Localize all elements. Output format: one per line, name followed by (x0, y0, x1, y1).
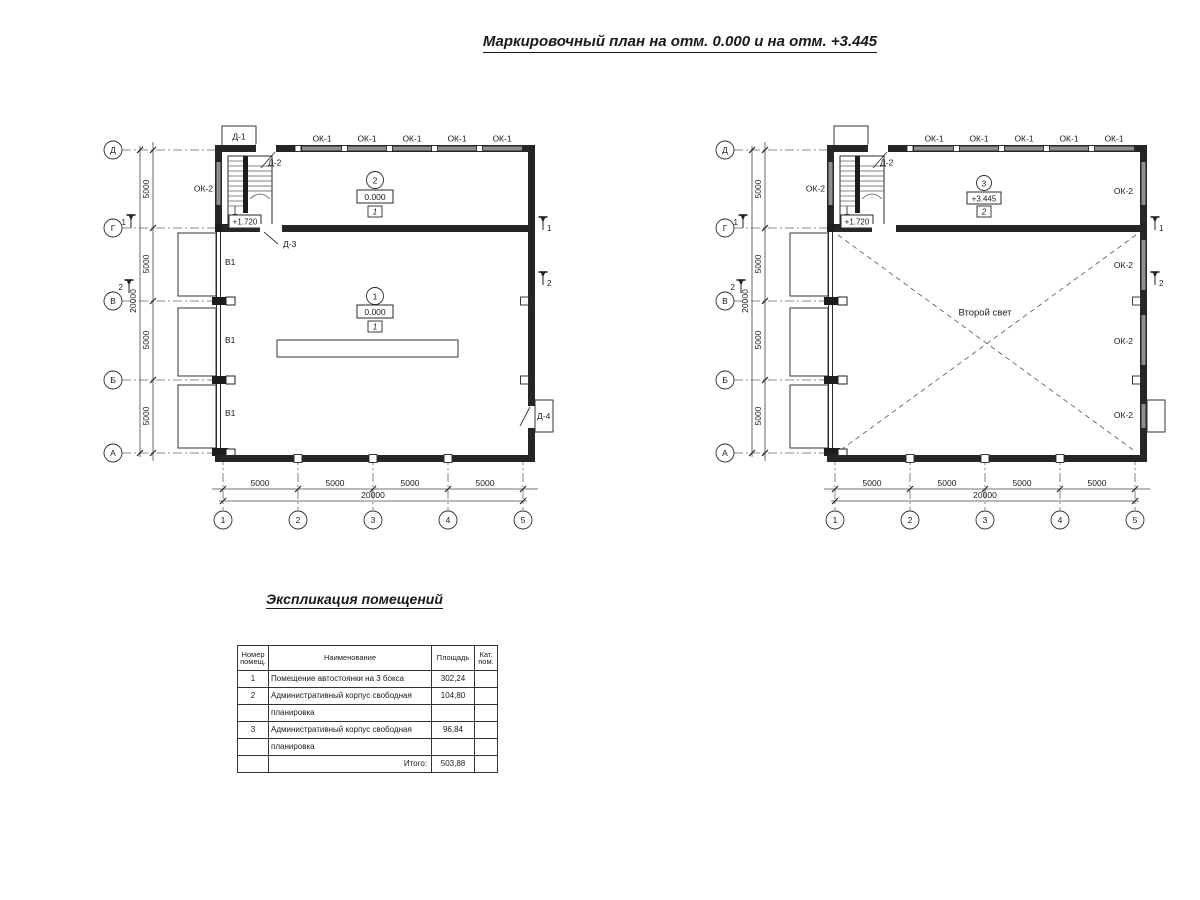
col-header-number: Номер помещ. (238, 646, 269, 671)
svg-text:ОК-1: ОК-1 (357, 134, 376, 144)
svg-text:А: А (110, 448, 116, 458)
svg-text:Д-3: Д-3 (283, 239, 297, 249)
svg-text:2: 2 (547, 279, 552, 288)
svg-text:Д-1: Д-1 (232, 132, 246, 142)
svg-text:5000: 5000 (1088, 478, 1107, 488)
svg-text:5000: 5000 (141, 406, 151, 425)
svg-text:ОК-1: ОК-1 (1014, 134, 1033, 144)
svg-text:ОК-1: ОК-1 (1104, 134, 1123, 144)
svg-text:1: 1 (373, 323, 377, 332)
svg-text:ОК-1: ОК-1 (402, 134, 421, 144)
axis-col-labels-right: 1 2 3 4 5 (833, 515, 1138, 525)
svg-text:Д-4: Д-4 (537, 411, 551, 421)
svg-text:5000: 5000 (326, 478, 345, 488)
svg-text:В: В (722, 296, 728, 306)
svg-text:2: 2 (296, 515, 301, 525)
plans-canvas: Д Г В Б А 1 2 3 4 5 5000 5000 5000 5000 … (0, 0, 1200, 570)
table-row: планировка (238, 705, 498, 722)
svg-text:3: 3 (371, 515, 376, 525)
table-row: 3 Административный корпус свободная 96,8… (238, 722, 498, 739)
svg-text:5000: 5000 (1013, 478, 1032, 488)
svg-text:ОК-1: ОК-1 (447, 134, 466, 144)
svg-text:+1.720: +1.720 (845, 218, 870, 227)
svg-text:ОК-2: ОК-2 (1114, 336, 1133, 346)
svg-text:5000: 5000 (141, 254, 151, 273)
void-diagonals (838, 235, 1136, 452)
svg-text:2: 2 (908, 515, 913, 525)
room-marker-2: 2 0.000 1 (357, 172, 393, 218)
svg-text:ОК-2: ОК-2 (806, 184, 825, 194)
svg-text:20000: 20000 (128, 289, 138, 313)
col-header-category: Кат. пом. (475, 646, 498, 671)
svg-text:4: 4 (446, 515, 451, 525)
svg-text:1: 1 (734, 218, 739, 227)
svg-text:2: 2 (373, 176, 378, 186)
svg-text:Второй свет: Второй свет (958, 308, 1012, 319)
svg-text:3: 3 (982, 180, 987, 189)
svg-text:5000: 5000 (476, 478, 495, 488)
svg-text:В1: В1 (225, 408, 236, 418)
table-row: планировка (238, 739, 498, 756)
room-marker-3: 3 +3.445 2 (967, 176, 1001, 218)
svg-text:5000: 5000 (251, 478, 270, 488)
svg-text:0.000: 0.000 (364, 307, 386, 317)
axis-row-labels-right: Д Г В Б А (722, 145, 728, 458)
table-total-row: Итого: 503,88 (238, 756, 498, 773)
svg-text:1: 1 (1159, 224, 1164, 233)
svg-text:5000: 5000 (753, 179, 763, 198)
svg-text:1: 1 (547, 224, 552, 233)
svg-text:3: 3 (983, 515, 988, 525)
svg-text:5: 5 (521, 515, 526, 525)
table-row: 1 Помещение автостоянки на 3 бокса 302,2… (238, 671, 498, 688)
svg-text:ОК-1: ОК-1 (969, 134, 988, 144)
col-header-area: Площадь (432, 646, 475, 671)
drawing-sheet: { "title": "Маркировочный план на отм. 0… (0, 0, 1200, 900)
inspection-pit (277, 340, 458, 357)
axis-row-labels-left: Д Г В Б А (110, 145, 116, 458)
svg-text:5000: 5000 (938, 478, 957, 488)
svg-text:ОК-2: ОК-2 (194, 184, 213, 194)
svg-text:Д-2: Д-2 (880, 158, 894, 168)
svg-text:1: 1 (221, 515, 226, 525)
svg-text:20000: 20000 (740, 289, 750, 313)
svg-text:0.000: 0.000 (364, 192, 386, 202)
svg-text:Г: Г (723, 223, 728, 233)
svg-text:ОК-1: ОК-1 (924, 134, 943, 144)
axis-col-labels-left: 1 2 3 4 5 (221, 515, 526, 525)
table-title: Экспликация помещений (266, 591, 443, 607)
room-schedule-table: Номер помещ. Наименование Площадь Кат. п… (237, 645, 498, 773)
svg-text:Б: Б (722, 375, 728, 385)
svg-text:Г: Г (111, 223, 116, 233)
svg-text:ОК-1: ОК-1 (492, 134, 511, 144)
svg-text:Д-2: Д-2 (268, 158, 282, 168)
svg-text:Д: Д (722, 145, 728, 155)
svg-text:2: 2 (1159, 279, 1164, 288)
svg-text:5000: 5000 (401, 478, 420, 488)
svg-text:ОК-1: ОК-1 (312, 134, 331, 144)
svg-text:5000: 5000 (753, 330, 763, 349)
svg-text:1: 1 (833, 515, 838, 525)
svg-text:5000: 5000 (141, 179, 151, 198)
floor-plan-level-3445: Д Г В Б А 1 2 3 4 5 5000 5000 5000 5000 … (716, 126, 1165, 529)
svg-text:20000: 20000 (361, 490, 385, 500)
svg-text:В: В (110, 296, 116, 306)
svg-text:5000: 5000 (863, 478, 882, 488)
svg-text:5: 5 (1133, 515, 1138, 525)
svg-text:А: А (722, 448, 728, 458)
svg-text:1: 1 (373, 208, 377, 217)
svg-text:В1: В1 (225, 335, 236, 345)
svg-text:Б: Б (110, 375, 116, 385)
svg-text:2: 2 (731, 283, 736, 292)
room-marker-1: 1 0.000 1 (357, 288, 393, 333)
table-header-row: Номер помещ. Наименование Площадь Кат. п… (238, 646, 498, 671)
svg-text:ОК-2: ОК-2 (1114, 260, 1133, 270)
svg-text:ОК-2: ОК-2 (1114, 410, 1133, 420)
svg-text:В1: В1 (225, 257, 236, 267)
svg-text:+3.445: +3.445 (972, 195, 997, 204)
svg-text:5000: 5000 (753, 254, 763, 273)
svg-text:2: 2 (981, 208, 987, 217)
svg-text:Д: Д (110, 145, 116, 155)
svg-text:1: 1 (373, 292, 378, 302)
floor-plan-level-0: Д Г В Б А 1 2 3 4 5 5000 5000 5000 5000 … (104, 126, 553, 529)
col-header-name: Наименование (269, 646, 432, 671)
svg-text:5000: 5000 (141, 330, 151, 349)
svg-text:+1.720: +1.720 (233, 218, 258, 227)
svg-text:1: 1 (122, 218, 127, 227)
svg-text:2: 2 (119, 283, 124, 292)
svg-text:ОК-2: ОК-2 (1114, 186, 1133, 196)
svg-text:ОК-1: ОК-1 (1059, 134, 1078, 144)
svg-text:20000: 20000 (973, 490, 997, 500)
svg-text:5000: 5000 (753, 406, 763, 425)
table-row: 2 Административный корпус свободная 104,… (238, 688, 498, 705)
svg-text:4: 4 (1058, 515, 1063, 525)
